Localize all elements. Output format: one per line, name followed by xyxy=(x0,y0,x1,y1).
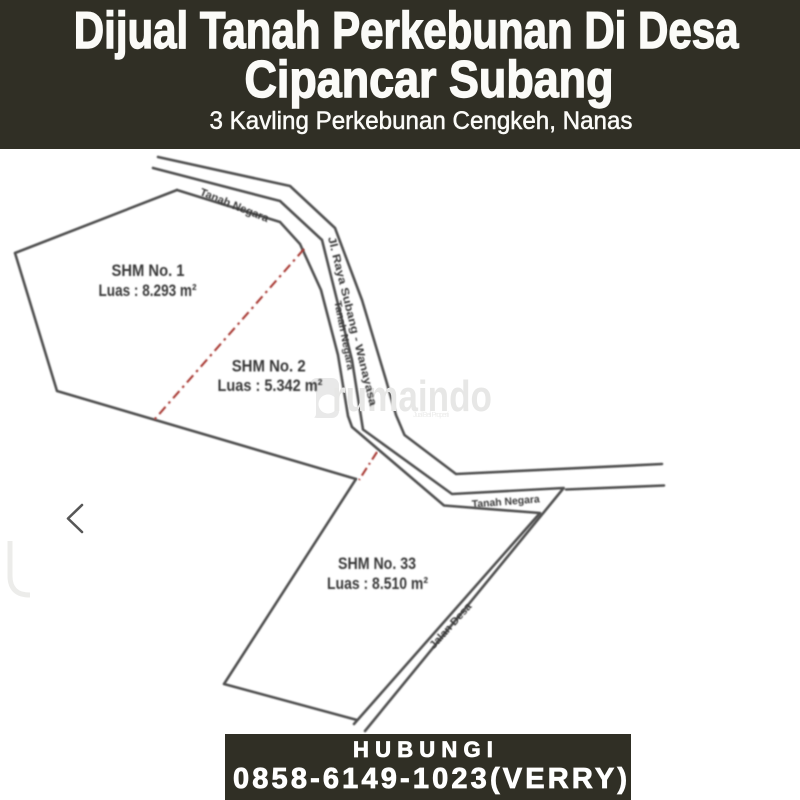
svg-text:SHM No. 1: SHM No. 1 xyxy=(112,261,185,280)
svg-text:Tanah Negara: Tanah Negara xyxy=(471,493,540,510)
svg-text:Jalan Desa: Jalan Desa xyxy=(427,601,474,652)
svg-text:SHM No. 2: SHM No. 2 xyxy=(232,357,306,376)
svg-text:SHM No. 33: SHM No. 33 xyxy=(338,554,416,573)
svg-text:rumaindo: rumaindo xyxy=(332,372,492,421)
svg-text:Tanah Negara: Tanah Negara xyxy=(198,186,271,225)
svg-text:Jual Beli Properti: Jual Beli Properti xyxy=(413,412,449,419)
svg-text:Luas : 8.510 m²: Luas : 8.510 m² xyxy=(327,574,428,593)
svg-text:Luas : 8.293 m²: Luas : 8.293 m² xyxy=(99,281,197,300)
svg-text:Luas : 5.342 m²: Luas : 5.342 m² xyxy=(218,376,323,395)
